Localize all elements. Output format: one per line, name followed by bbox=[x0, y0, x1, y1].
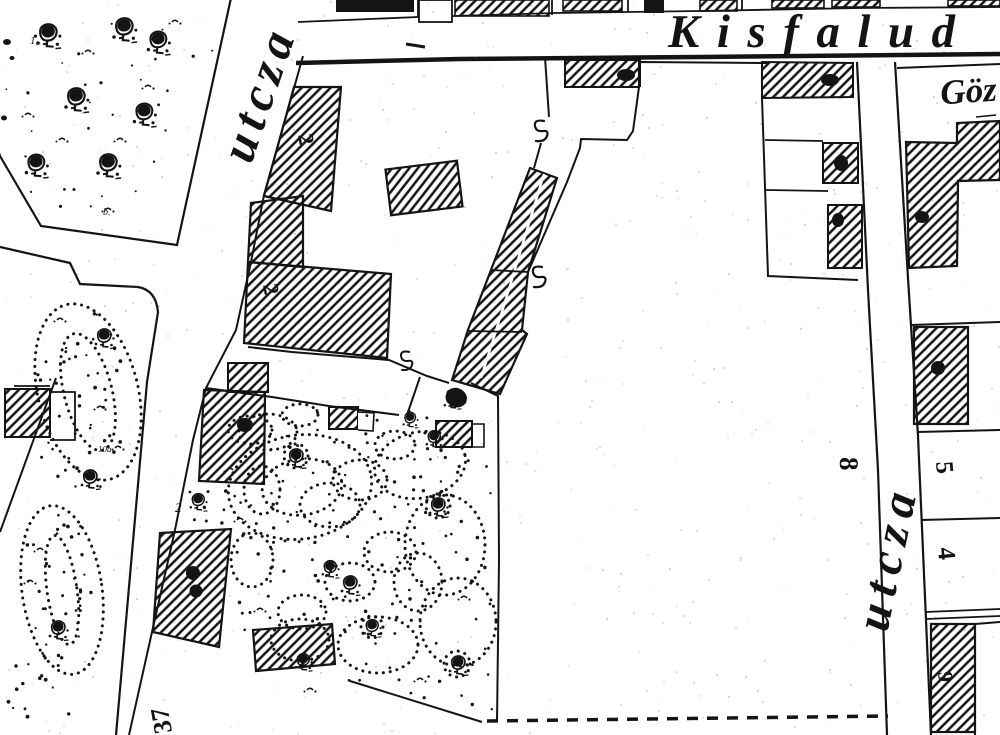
svg-text:5: 5 bbox=[930, 460, 958, 475]
svg-text:10a: 10a bbox=[98, 444, 112, 454]
svg-text:1,: 1, bbox=[30, 35, 39, 47]
svg-text:Kisfalud: Kisfalud bbox=[667, 6, 973, 58]
svg-text:b.: b. bbox=[103, 207, 111, 218]
svg-text:37: 37 bbox=[145, 705, 178, 735]
svg-text:9: 9 bbox=[933, 670, 958, 683]
svg-text:Göz: Göz bbox=[939, 70, 998, 113]
svg-text:8: 8 bbox=[834, 457, 864, 471]
